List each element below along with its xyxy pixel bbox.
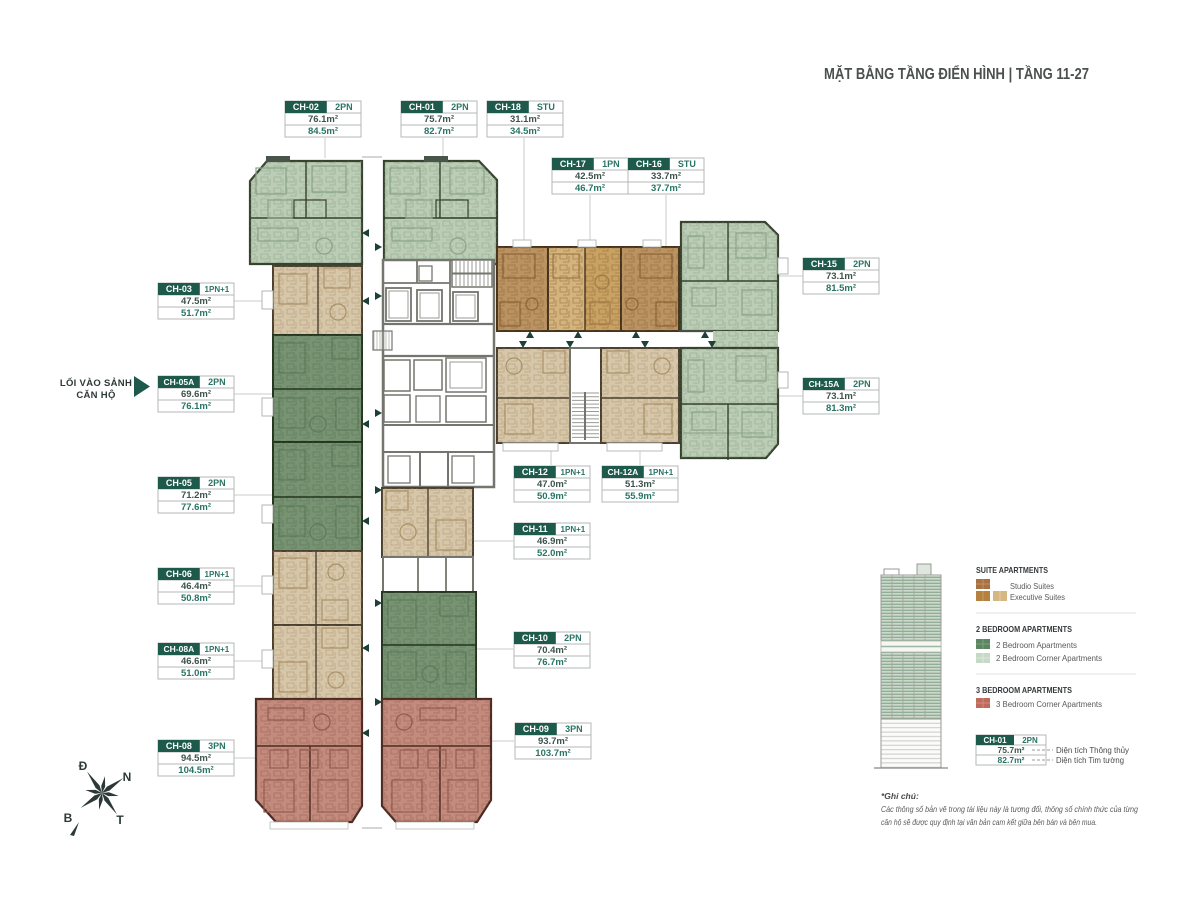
svg-text:CH-11: CH-11	[522, 524, 548, 534]
svg-text:46.4m²: 46.4m²	[181, 581, 211, 592]
svg-text:81.3m²: 81.3m²	[826, 403, 856, 414]
svg-text:Executive Suites: Executive Suites	[1010, 593, 1065, 602]
svg-text:N: N	[123, 770, 132, 784]
svg-text:1PN+1: 1PN+1	[205, 285, 230, 294]
svg-text:50.9m²: 50.9m²	[537, 491, 567, 502]
svg-text:76.1m²: 76.1m²	[181, 401, 211, 412]
svg-text:CH-01: CH-01	[409, 102, 435, 112]
svg-text:2PN: 2PN	[1022, 736, 1038, 745]
svg-text:3 BEDROOM APARTMENTS: 3 BEDROOM APARTMENTS	[976, 685, 1072, 695]
svg-text:T: T	[116, 813, 124, 827]
svg-text:2PN: 2PN	[208, 478, 226, 488]
svg-text:3 Bedroom Corner Apartments: 3 Bedroom Corner Apartments	[996, 700, 1102, 709]
svg-text:77.6m²: 77.6m²	[181, 502, 211, 513]
svg-text:76.1m²: 76.1m²	[308, 114, 338, 125]
svg-text:1PN+1: 1PN+1	[561, 468, 586, 477]
svg-text:2PN: 2PN	[564, 633, 582, 643]
svg-text:1PN+1: 1PN+1	[205, 645, 230, 654]
svg-text:103.7m²: 103.7m²	[535, 748, 570, 759]
svg-text:B: B	[64, 811, 73, 825]
svg-text:CH-10: CH-10	[522, 633, 548, 643]
svg-text:76.7m²: 76.7m²	[537, 657, 567, 668]
svg-text:2PN: 2PN	[451, 102, 469, 112]
svg-text:CĂN HỘ: CĂN HỘ	[76, 389, 115, 401]
svg-text:1PN+1: 1PN+1	[649, 468, 674, 477]
svg-text:*Ghi chú:: *Ghi chú:	[881, 791, 919, 801]
svg-text:1PN+1: 1PN+1	[205, 570, 230, 579]
svg-text:55.9m²: 55.9m²	[625, 491, 655, 502]
svg-text:94.5m²: 94.5m²	[181, 753, 211, 764]
svg-text:CH-02: CH-02	[293, 102, 319, 112]
svg-text:Diện tích Thông thủy: Diện tích Thông thủy	[1056, 745, 1130, 755]
svg-text:3PN: 3PN	[565, 724, 583, 734]
svg-text:CH-12A: CH-12A	[608, 467, 639, 477]
svg-text:93.7m²: 93.7m²	[538, 736, 568, 747]
svg-text:CH-08A: CH-08A	[164, 644, 195, 654]
svg-text:CH-15: CH-15	[811, 259, 837, 269]
svg-text:2PN: 2PN	[853, 259, 871, 269]
svg-text:81.5m²: 81.5m²	[826, 283, 856, 294]
svg-text:CH-03: CH-03	[166, 284, 192, 294]
svg-text:70.4m²: 70.4m²	[537, 645, 567, 656]
svg-text:71.2m²: 71.2m²	[181, 490, 211, 501]
svg-text:CH-05A: CH-05A	[164, 377, 195, 387]
svg-text:37.7m²: 37.7m²	[651, 183, 681, 194]
svg-text:69.6m²: 69.6m²	[181, 389, 211, 400]
svg-text:73.1m²: 73.1m²	[826, 271, 856, 282]
svg-text:46.6m²: 46.6m²	[181, 656, 211, 667]
svg-text:42.5m²: 42.5m²	[575, 171, 605, 182]
svg-text:50.8m²: 50.8m²	[181, 593, 211, 604]
svg-text:Studio Suites: Studio Suites	[1010, 582, 1054, 591]
svg-text:75.7m²: 75.7m²	[424, 114, 454, 125]
svg-text:34.5m²: 34.5m²	[510, 126, 540, 137]
svg-text:75.7m²: 75.7m²	[998, 745, 1025, 755]
svg-text:Đ: Đ	[79, 759, 88, 773]
svg-text:2PN: 2PN	[208, 377, 226, 387]
svg-text:46.9m²: 46.9m²	[537, 536, 567, 547]
svg-text:1PN+1: 1PN+1	[561, 525, 586, 534]
svg-text:2PN: 2PN	[853, 379, 871, 389]
svg-text:CH-17: CH-17	[560, 159, 586, 169]
svg-text:CH-05: CH-05	[166, 478, 192, 488]
svg-text:51.3m²: 51.3m²	[625, 479, 655, 490]
svg-text:CH-12: CH-12	[522, 467, 548, 477]
svg-text:1PN: 1PN	[602, 159, 620, 169]
svg-text:2 BEDROOM APARTMENTS: 2 BEDROOM APARTMENTS	[976, 624, 1072, 634]
svg-text:2PN: 2PN	[335, 102, 353, 112]
svg-text:CH-09: CH-09	[523, 724, 549, 734]
svg-text:CH-18: CH-18	[495, 102, 521, 112]
svg-text:CH-16: CH-16	[636, 159, 662, 169]
svg-text:căn hộ sẽ được quy định tại vă: căn hộ sẽ được quy định tại văn bản cam …	[881, 817, 1097, 827]
svg-text:104.5m²: 104.5m²	[178, 765, 213, 776]
svg-text:47.5m²: 47.5m²	[181, 296, 211, 307]
svg-text:47.0m²: 47.0m²	[537, 479, 567, 490]
svg-text:MẶT BẰNG TẦNG ĐIỂN HÌNH | TẦNG: MẶT BẰNG TẦNG ĐIỂN HÌNH | TẦNG 11-27	[824, 64, 1089, 83]
svg-text:2 Bedroom Apartments: 2 Bedroom Apartments	[996, 641, 1077, 650]
svg-text:Diện tích Tim tường: Diện tích Tim tường	[1056, 755, 1124, 765]
svg-text:73.1m²: 73.1m²	[826, 391, 856, 402]
svg-text:46.7m²: 46.7m²	[575, 183, 605, 194]
svg-text:STU: STU	[537, 102, 555, 112]
svg-text:82.7m²: 82.7m²	[998, 755, 1025, 765]
svg-text:2 Bedroom Corner Apartments: 2 Bedroom Corner Apartments	[996, 654, 1102, 663]
svg-text:SUITE APARTMENTS: SUITE APARTMENTS	[976, 565, 1048, 575]
svg-text:82.7m²: 82.7m²	[424, 126, 454, 137]
svg-text:Các thông số bản vẽ trong tài: Các thông số bản vẽ trong tài liệu này l…	[881, 804, 1138, 814]
svg-text:31.1m²: 31.1m²	[510, 114, 540, 125]
svg-text:CH-15A: CH-15A	[809, 379, 840, 389]
svg-text:CH-01: CH-01	[983, 736, 1007, 745]
svg-text:84.5m²: 84.5m²	[308, 126, 338, 137]
svg-text:LỐI VÀO SẢNH: LỐI VÀO SẢNH	[60, 377, 132, 389]
svg-text:STU: STU	[678, 159, 696, 169]
svg-text:51.0m²: 51.0m²	[181, 668, 211, 679]
svg-text:51.7m²: 51.7m²	[181, 308, 211, 319]
svg-text:3PN: 3PN	[208, 741, 226, 751]
svg-text:33.7m²: 33.7m²	[651, 171, 681, 182]
svg-text:CH-08: CH-08	[166, 741, 192, 751]
svg-text:52.0m²: 52.0m²	[537, 548, 567, 559]
svg-text:CH-06: CH-06	[166, 569, 192, 579]
